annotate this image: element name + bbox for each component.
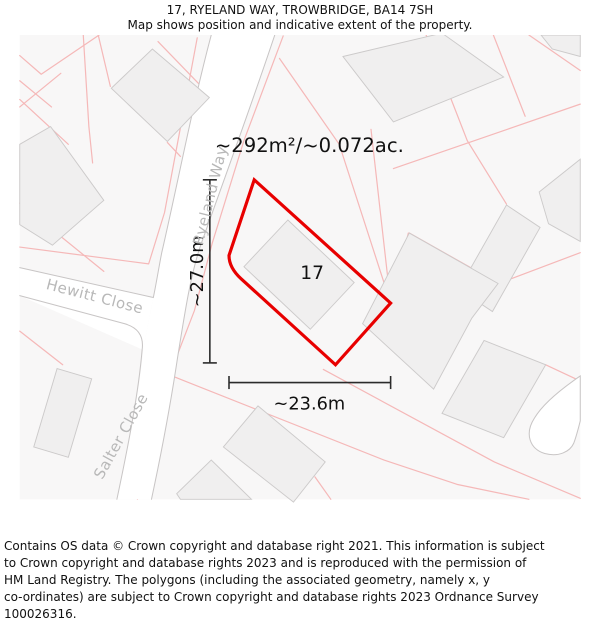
header: 17, RYELAND WAY, TROWBRIDGE, BA14 7SH Ma… [0, 0, 600, 35]
page-title: 17, RYELAND WAY, TROWBRIDGE, BA14 7SH [0, 0, 600, 18]
map-container: ~292m²/~0.072ac. 17 ~27.0m ~23.6m Ryelan… [0, 35, 600, 532]
area-label: ~292m²/~0.072ac. [215, 134, 404, 157]
width-label: ~23.6m [273, 395, 345, 415]
page: 17, RYELAND WAY, TROWBRIDGE, BA14 7SH Ma… [0, 0, 600, 625]
plot-number-label: 17 [300, 263, 324, 284]
copyright-text: Contains OS data © Crown copyright and d… [0, 536, 600, 625]
page-subtitle: Map shows position and indicative extent… [0, 18, 600, 33]
property-map: ~292m²/~0.072ac. 17 ~27.0m ~23.6m Ryelan… [0, 35, 600, 532]
